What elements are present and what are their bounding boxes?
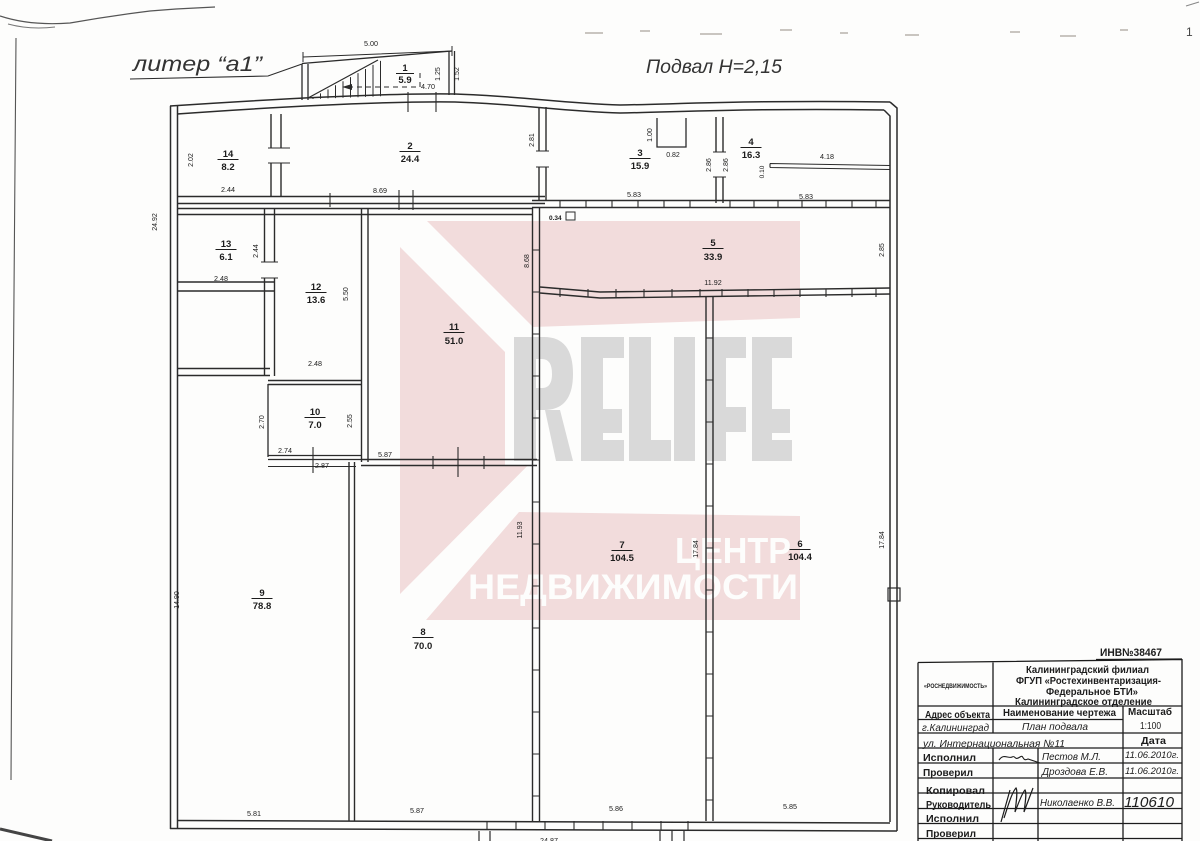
svg-text:5: 5 — [710, 238, 716, 249]
svg-text:16.3: 16.3 — [742, 150, 761, 161]
svg-text:11.06.2010г.: 11.06.2010г. — [1125, 766, 1179, 777]
svg-text:1.52: 1.52 — [454, 67, 461, 81]
svg-text:3: 3 — [637, 148, 642, 159]
svg-text:11: 11 — [449, 322, 460, 333]
svg-text:Пестов М.Л.: Пестов М.Л. — [1042, 752, 1101, 763]
svg-text:5.87: 5.87 — [378, 450, 392, 459]
svg-text:110610: 110610 — [1124, 794, 1175, 811]
svg-text:8: 8 — [420, 627, 425, 638]
svg-text:11.93: 11.93 — [517, 521, 524, 538]
svg-text:11.06.2010г.: 11.06.2010г. — [1125, 750, 1179, 761]
svg-text:1.25: 1.25 — [435, 67, 442, 81]
svg-text:5.81: 5.81 — [247, 809, 261, 818]
svg-text:Наименование чертежа: Наименование чертежа — [1003, 707, 1116, 719]
svg-text:10: 10 — [310, 407, 321, 418]
svg-text:24.87: 24.87 — [540, 836, 558, 841]
svg-text:6.1: 6.1 — [219, 252, 233, 263]
svg-text:Исполнил: Исполнил — [926, 813, 979, 825]
svg-text:2: 2 — [407, 141, 412, 152]
svg-text:2.44: 2.44 — [221, 185, 235, 194]
svg-text:1.00: 1.00 — [647, 128, 654, 142]
svg-text:2.74: 2.74 — [278, 446, 292, 455]
svg-text:6: 6 — [797, 539, 802, 550]
svg-text:Подвал Н=2,15: Подвал Н=2,15 — [646, 56, 782, 78]
svg-text:104.4: 104.4 — [788, 552, 812, 563]
svg-text:5.85: 5.85 — [783, 802, 797, 811]
svg-text:Проверил: Проверил — [926, 828, 976, 840]
svg-text:2.87: 2.87 — [315, 461, 329, 470]
svg-text:24.4: 24.4 — [401, 154, 420, 165]
svg-text:17.84: 17.84 — [693, 540, 700, 558]
svg-text:2.70: 2.70 — [259, 415, 266, 429]
svg-text:2.81: 2.81 — [529, 133, 536, 147]
svg-text:0.10: 0.10 — [759, 165, 766, 178]
svg-text:4: 4 — [748, 137, 754, 148]
svg-text:9: 9 — [259, 588, 264, 599]
svg-text:2.55: 2.55 — [347, 414, 354, 428]
svg-text:4.18: 4.18 — [820, 152, 834, 161]
svg-text:8.2: 8.2 — [221, 162, 234, 173]
svg-text:1: 1 — [402, 63, 408, 74]
svg-text:Руководитель: Руководитель — [926, 799, 991, 811]
svg-text:«РОСНЕДВИЖИМОСТЬ»: «РОСНЕДВИЖИМОСТЬ» — [924, 683, 987, 690]
svg-text:104.5: 104.5 — [610, 553, 634, 564]
svg-text:ИНВ№38467: ИНВ№38467 — [1100, 647, 1162, 659]
svg-text:70.0: 70.0 — [414, 641, 433, 652]
svg-text:0.82: 0.82 — [666, 152, 680, 159]
svg-text:5.83: 5.83 — [627, 190, 641, 199]
svg-text:7.0: 7.0 — [308, 420, 321, 431]
svg-text:14: 14 — [223, 149, 234, 160]
svg-text:5.86: 5.86 — [609, 804, 623, 813]
svg-text:2.44: 2.44 — [253, 244, 260, 258]
svg-text:2.48: 2.48 — [214, 274, 228, 283]
svg-text:51.0: 51.0 — [445, 336, 464, 347]
svg-text:2.48: 2.48 — [308, 359, 322, 368]
svg-text:2.86: 2.86 — [706, 158, 713, 172]
svg-text:План подвала: План подвала — [1022, 721, 1088, 733]
svg-text:Исполнил: Исполнил — [923, 752, 976, 764]
svg-text:1: 1 — [1186, 25, 1193, 39]
svg-text:5.50: 5.50 — [343, 287, 350, 301]
svg-text:Копировал: Копировал — [926, 785, 985, 797]
svg-text:г.Калининград: г.Калининград — [922, 722, 989, 734]
svg-text:1:100: 1:100 — [1140, 721, 1161, 732]
svg-text:5.87: 5.87 — [410, 806, 424, 815]
svg-text:5.00: 5.00 — [364, 39, 378, 48]
svg-text:4.70: 4.70 — [421, 82, 435, 91]
svg-text:11.92: 11.92 — [704, 278, 721, 287]
svg-text:0.34: 0.34 — [549, 215, 562, 222]
svg-text:Масштаб: Масштаб — [1128, 706, 1172, 718]
svg-text:33.9: 33.9 — [704, 252, 723, 263]
svg-text:НЕДВИЖИМОСТИ: НЕДВИЖИМОСТИ — [468, 568, 798, 607]
svg-text:15.9: 15.9 — [631, 161, 650, 172]
svg-text:78.8: 78.8 — [253, 601, 272, 612]
svg-text:Адрес объекта: Адрес объекта — [925, 709, 990, 721]
svg-text:13: 13 — [221, 239, 232, 250]
svg-text:Дата: Дата — [1141, 735, 1166, 747]
svg-text:14.90: 14.90 — [174, 591, 181, 609]
svg-text:2.86: 2.86 — [723, 158, 730, 172]
svg-text:2.85: 2.85 — [879, 243, 886, 257]
svg-text:7: 7 — [619, 540, 624, 551]
svg-text:8.68: 8.68 — [524, 254, 531, 268]
svg-text:12: 12 — [311, 282, 322, 293]
svg-text:Дроздова Е.В.: Дроздова Е.В. — [1041, 767, 1108, 778]
svg-text:ул. Интернациональная №11: ул. Интернациональная №11 — [922, 738, 1065, 750]
svg-text:24.92: 24.92 — [152, 213, 159, 231]
svg-text:Проверил: Проверил — [923, 767, 973, 779]
svg-text:5.83: 5.83 — [799, 192, 813, 201]
svg-text:Николаенко В.В.: Николаенко В.В. — [1040, 798, 1115, 809]
svg-text:17.84: 17.84 — [879, 531, 886, 549]
svg-text:2.02: 2.02 — [188, 153, 195, 167]
svg-text:8.69: 8.69 — [373, 186, 387, 195]
svg-text:13.6: 13.6 — [307, 295, 326, 306]
svg-text:литер “а1”: литер “а1” — [132, 53, 263, 76]
svg-text:5.9: 5.9 — [398, 75, 411, 86]
